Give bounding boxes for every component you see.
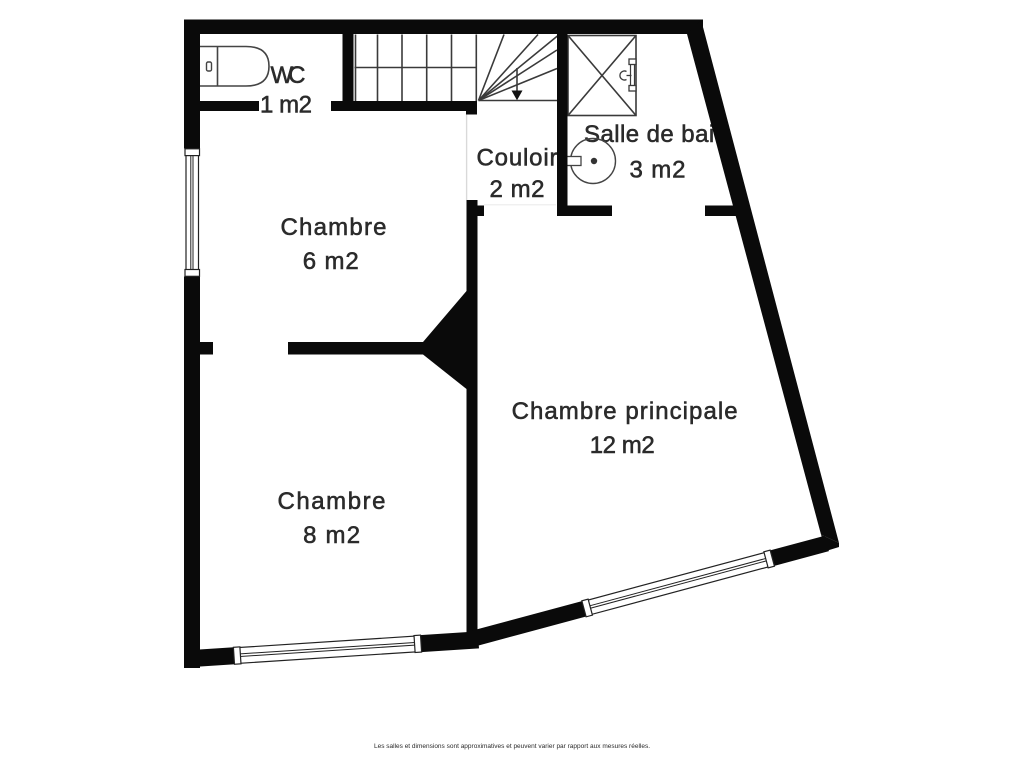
svg-text:Chambre principale: Chambre principale: [512, 398, 738, 425]
svg-text:2 m2: 2 m2: [490, 176, 545, 203]
svg-text:8 m2: 8 m2: [303, 522, 360, 549]
svg-text:Salle de bain: Salle de bain: [584, 121, 728, 148]
svg-text:WC: WC: [271, 62, 306, 89]
svg-text:1 m2: 1 m2: [260, 92, 312, 119]
svg-text:Couloir: Couloir: [477, 145, 558, 172]
svg-text:Chambre: Chambre: [278, 488, 386, 515]
svg-text:12 m2: 12 m2: [590, 432, 655, 459]
svg-text:3 m2: 3 m2: [630, 157, 686, 184]
svg-text:Les salles et dimensions sont: Les salles et dimensions sont approximat…: [374, 743, 650, 750]
svg-text:Chambre: Chambre: [281, 214, 387, 241]
svg-text:6 m2: 6 m2: [303, 248, 359, 275]
